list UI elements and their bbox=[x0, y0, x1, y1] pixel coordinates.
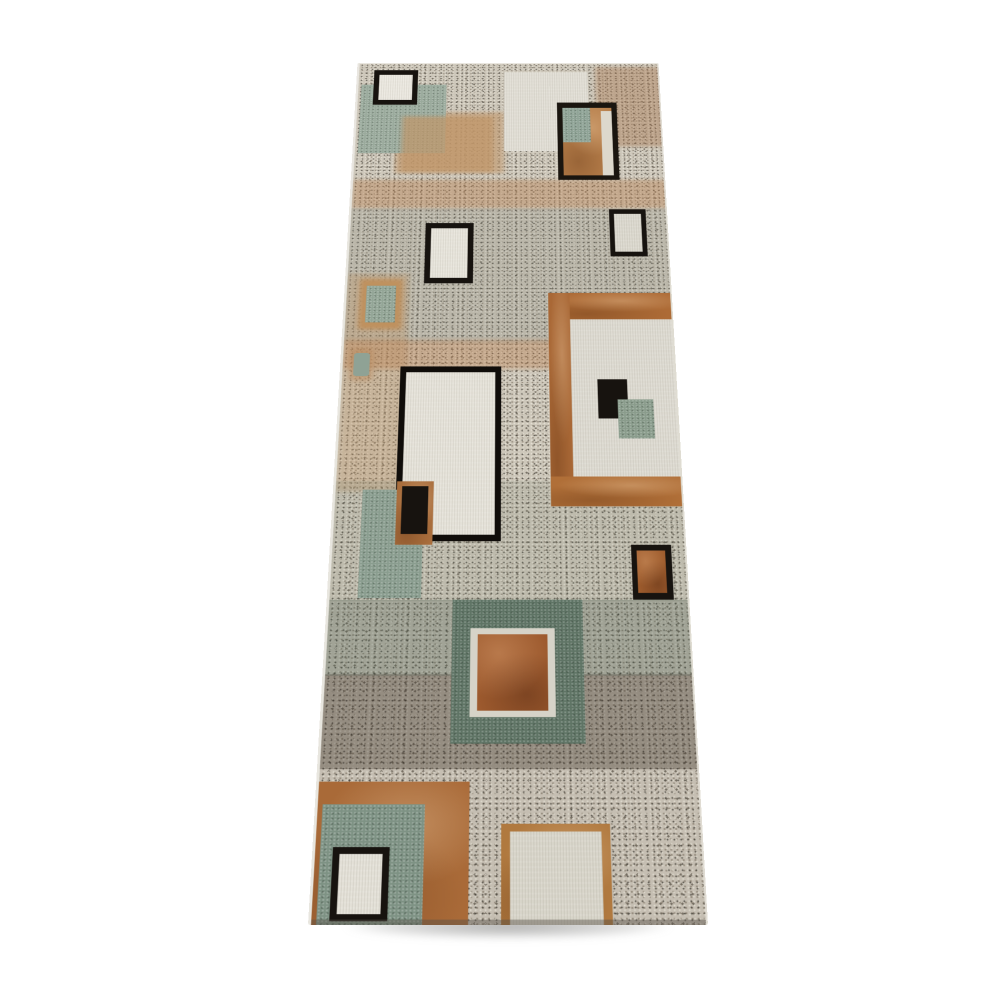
rug-surface bbox=[308, 63, 708, 925]
rug-bottom-edge-shade bbox=[311, 920, 708, 925]
small-framed-rect-right-fill bbox=[614, 214, 643, 252]
bottom-center-cream-fill bbox=[510, 832, 604, 925]
left-sage-dot bbox=[353, 353, 370, 376]
brown-frame-bottom-band bbox=[551, 477, 687, 507]
bottom-framed-rect-fill bbox=[337, 854, 383, 914]
tan-band-upper bbox=[352, 180, 670, 208]
black-framed-brown-rect-fill bbox=[637, 551, 668, 593]
rug-runner-photo bbox=[308, 63, 708, 925]
tan-band-mid bbox=[342, 340, 555, 369]
product-image-canvas: Product photo of a modern abstract runne… bbox=[0, 0, 1000, 1000]
brown-framed-black-rect-fill bbox=[401, 486, 429, 534]
center-rust-square bbox=[477, 634, 548, 710]
left-tan-green-chip-fill bbox=[365, 286, 396, 323]
top-left-tan-overlay bbox=[401, 116, 494, 172]
framed-rect-2-green-fill bbox=[562, 108, 591, 142]
framed-rect-1-fill bbox=[378, 75, 412, 100]
small-framed-rect-left-fill bbox=[430, 228, 468, 278]
interior-green-square bbox=[618, 399, 656, 438]
